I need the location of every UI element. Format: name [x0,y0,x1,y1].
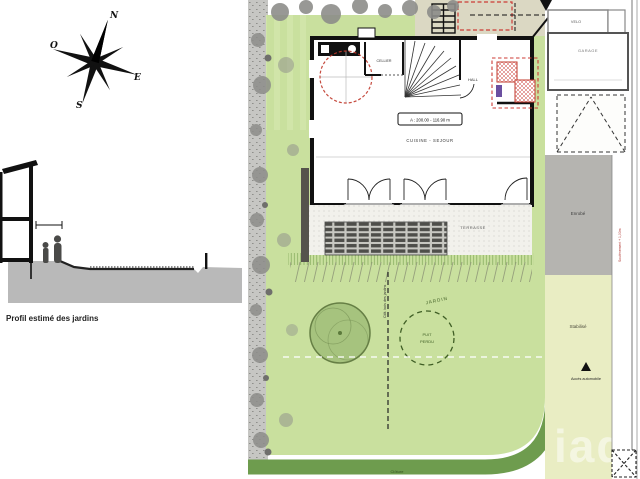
legend-panel: N O E S [0,0,248,479]
garage-room [548,33,628,90]
slope-hatch-band [290,258,532,282]
wall-post [29,164,33,263]
garden-profile-section [0,155,248,315]
ground-slab [0,258,30,262]
compass-s-label: S [76,101,83,111]
compass-e-label: E [133,73,141,83]
hedge-rows [266,15,312,130]
compass-star [38,5,151,118]
building: CELLIER HALL [309,28,538,214]
compass-n-label: N [109,11,119,21]
cloture-label: Clôture [391,469,405,474]
retaining-wall [301,168,309,262]
human-figures [43,235,62,263]
window-opening [309,120,315,138]
wc-fixture [497,62,517,82]
puit-label-2: PERDU [420,339,434,344]
gate-icon [612,450,636,477]
foundation-post [30,263,32,279]
site-plan-document: N O E S [0,0,640,479]
window-opening [309,60,315,78]
compass-rose: N O E S [30,0,180,130]
ground-surface-line [60,261,194,269]
site-plan: Clôture [248,0,640,479]
meter-box [608,10,625,33]
soutenement-label: Soutènement + 1,00m [618,228,622,262]
terrace-deck-grid [325,222,447,255]
acces-label: Accès automobile [571,377,601,381]
compass-o-label: O [50,41,58,51]
terrasse-label: TERRASSE [460,225,486,230]
garage-apron [557,95,625,152]
radiator [496,85,502,97]
stabilise-label: Stabilisé [569,324,587,329]
profile-caption: Profil estimé des jardins [6,314,98,323]
area-label: A : 200.00 - 116.90 m [410,118,450,123]
fence-note-label: Clôt. bois des jardins [383,284,387,318]
puit-label-1: PUIT [422,332,432,337]
marker-post [205,253,207,269]
hall-label: HALL [468,77,479,82]
cellier-label: CELLIER [377,59,392,63]
kitchen-hob [321,45,329,53]
velo-label: VELO [571,20,581,24]
floor-slab [0,217,31,221]
enrobe-label: Enrobé [571,211,586,216]
tree [310,303,370,363]
cuisine-sejour-label: CUISINE - SEJOUR [406,138,453,143]
garage-label: GARAGE [578,48,598,53]
entry-opening [477,34,497,42]
entry-step [358,28,375,38]
shower-fixture [515,80,535,102]
